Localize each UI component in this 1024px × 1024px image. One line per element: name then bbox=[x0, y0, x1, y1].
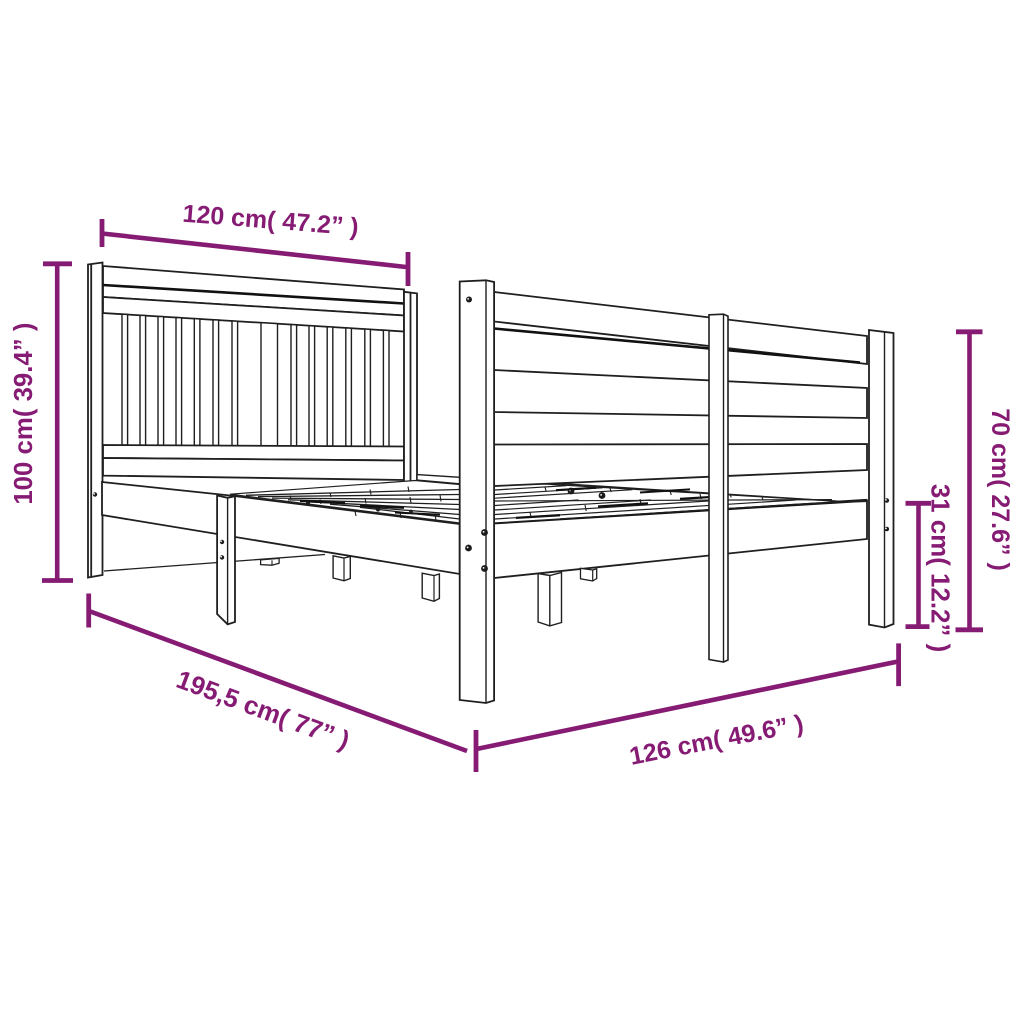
svg-text:70 cm( 27.6” ): 70 cm( 27.6” ) bbox=[986, 408, 1014, 571]
svg-text:31 cm( 12.2” ): 31 cm( 12.2” ) bbox=[926, 484, 954, 652]
svg-text:100 cm( 39.4” ): 100 cm( 39.4” ) bbox=[10, 323, 38, 505]
